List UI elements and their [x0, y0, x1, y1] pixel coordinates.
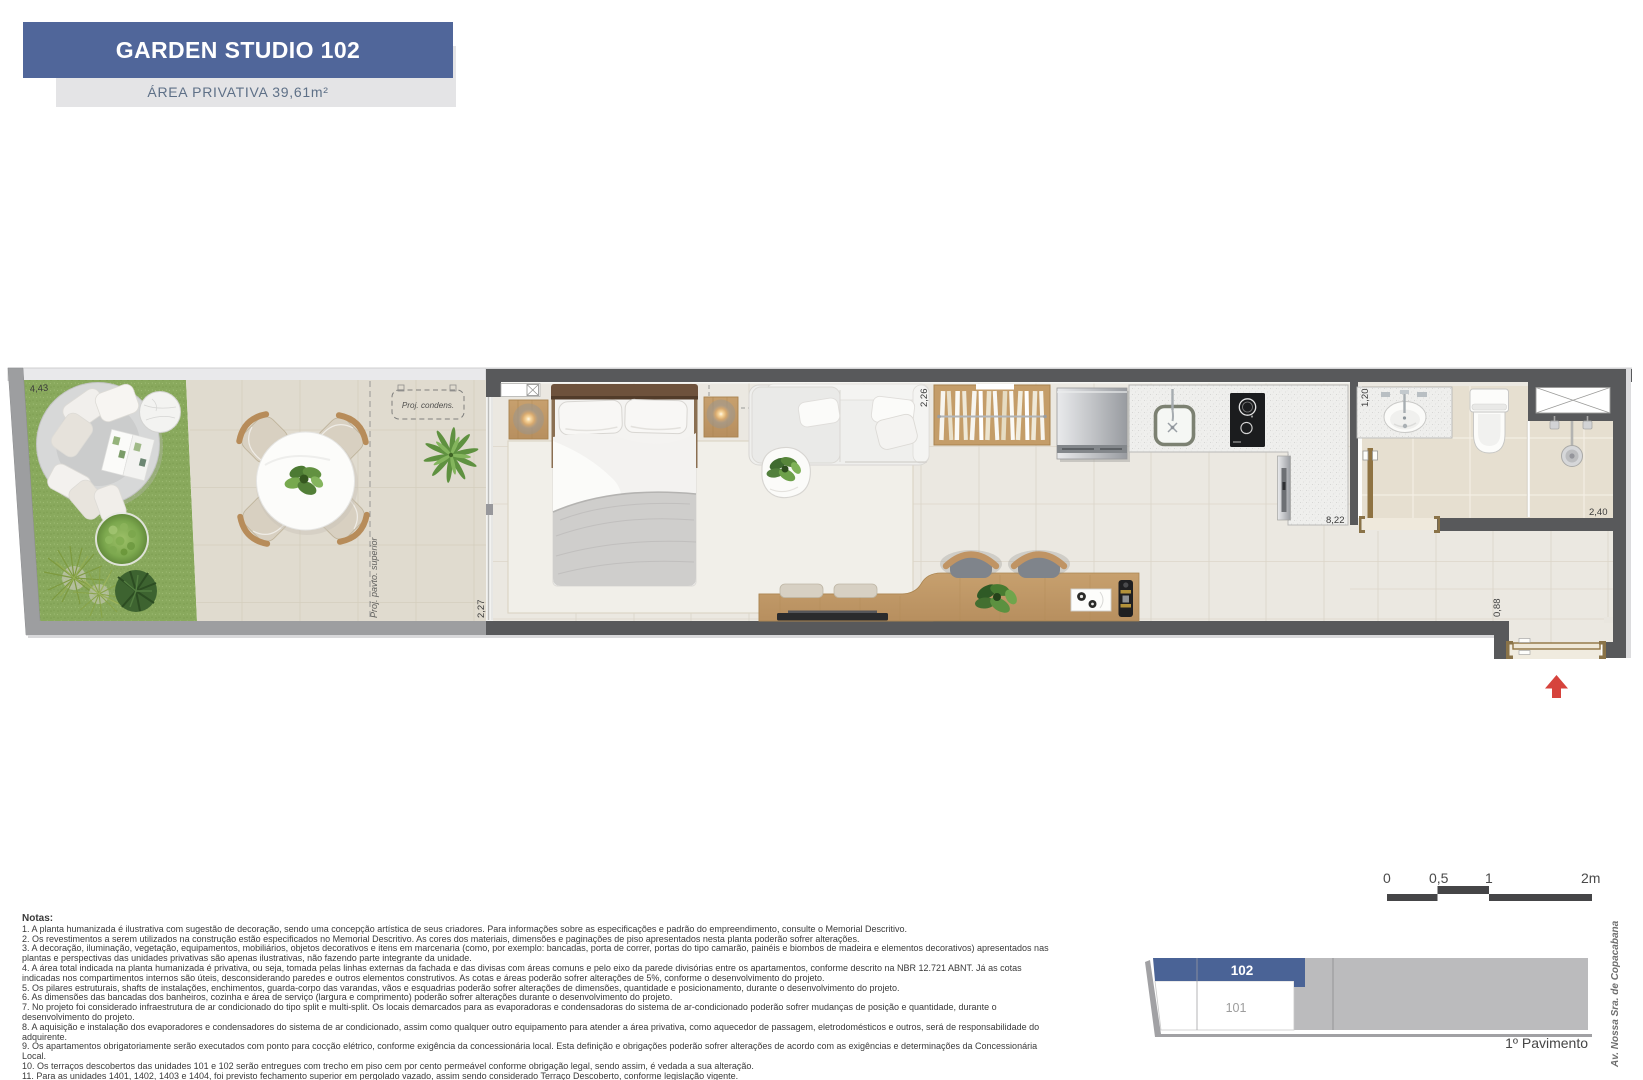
svg-text:8,22: 8,22: [1326, 515, 1345, 526]
svg-text:1: 1: [1485, 870, 1493, 886]
svg-text:2,26: 2,26: [919, 389, 930, 408]
svg-text:2,40: 2,40: [1589, 507, 1608, 518]
svg-text:Proj. condens.: Proj. condens.: [402, 401, 454, 410]
svg-text:102: 102: [1231, 963, 1254, 978]
svg-text:0,5: 0,5: [1429, 870, 1449, 886]
svg-text:Proj. pavto. superior: Proj. pavto. superior: [369, 536, 379, 618]
svg-text:0,88: 0,88: [1492, 599, 1503, 618]
svg-text:2,27: 2,27: [476, 600, 487, 619]
svg-text:2m: 2m: [1581, 870, 1600, 886]
svg-text:1,20: 1,20: [1360, 389, 1371, 408]
svg-text:4,43: 4,43: [29, 383, 48, 395]
svg-text:101: 101: [1226, 1001, 1247, 1015]
svg-text:0: 0: [1383, 870, 1391, 886]
